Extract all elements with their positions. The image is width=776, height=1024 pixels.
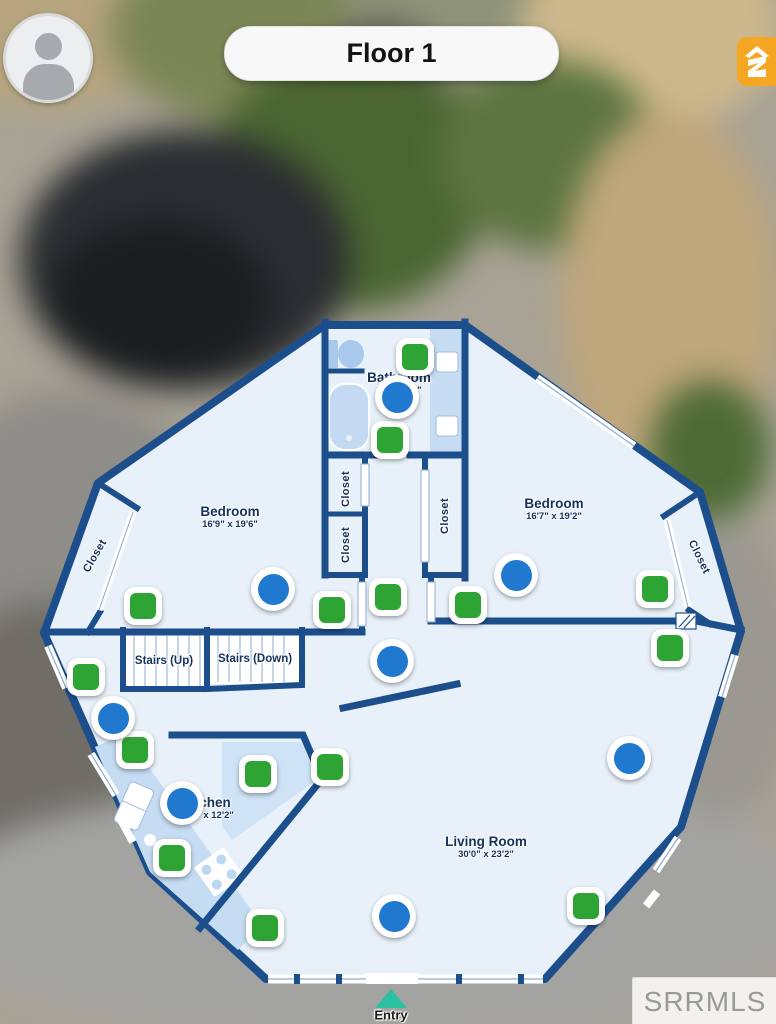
camera-marker-blue[interactable] [160,781,204,825]
panorama-marker-green[interactable] [313,591,351,629]
zillow-logo [737,37,776,86]
panorama-marker-green[interactable] [239,755,277,793]
panorama-marker-green[interactable] [636,570,674,608]
panorama-marker-green[interactable] [153,839,191,877]
camera-marker-blue[interactable] [372,894,416,938]
profile-avatar[interactable] [3,13,93,103]
panorama-marker-green[interactable] [369,578,407,616]
camera-marker-blue[interactable] [91,696,135,740]
panorama-marker-green[interactable] [246,909,284,947]
camera-marker-blue[interactable] [251,567,295,611]
markers-layer [0,0,776,1024]
mls-watermark: SRRMLS [632,977,776,1024]
camera-marker-blue[interactable] [375,375,419,419]
panorama-marker-green[interactable] [396,338,434,376]
panorama-marker-green[interactable] [567,887,605,925]
panorama-marker-green[interactable] [311,748,349,786]
zillow-z-icon [742,44,772,80]
camera-marker-blue[interactable] [607,736,651,780]
floor-selector-pill[interactable]: Floor 1 [224,26,559,81]
camera-marker-blue[interactable] [494,553,538,597]
panorama-marker-green[interactable] [449,586,487,624]
person-icon [35,33,62,60]
camera-marker-blue[interactable] [370,639,414,683]
floorplan-viewer: Bathroom 8'5" x 9'6" Bedroom 16'9" x 19'… [0,0,776,1024]
panorama-marker-green[interactable] [67,658,105,696]
panorama-marker-green[interactable] [651,629,689,667]
panorama-marker-green[interactable] [371,421,409,459]
panorama-marker-green[interactable] [124,587,162,625]
